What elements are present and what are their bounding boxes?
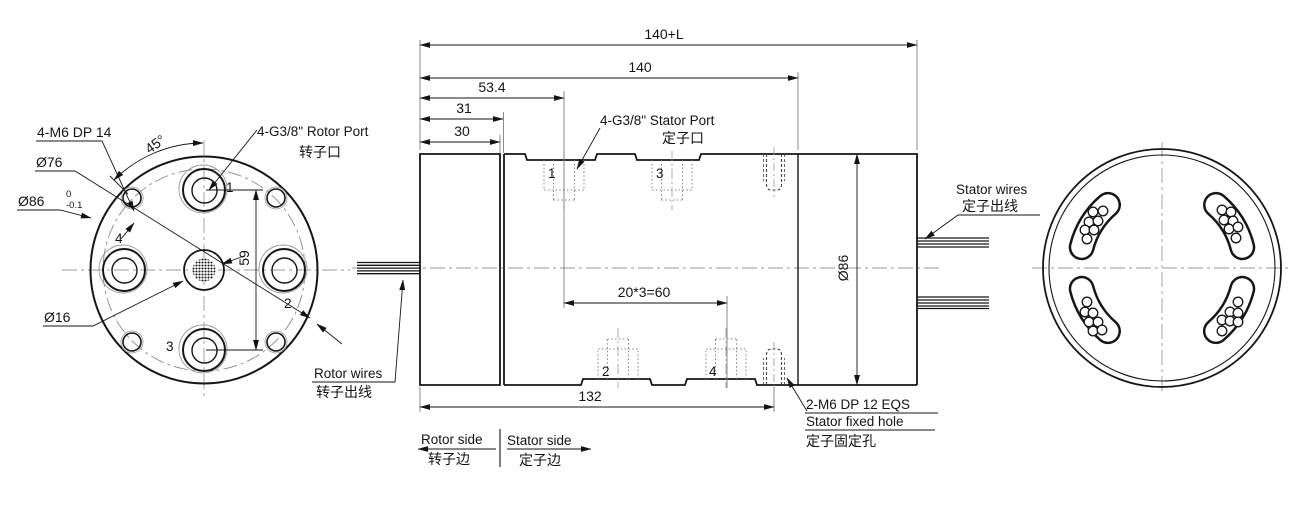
stator-wires-label-cn: 定子出线 xyxy=(962,198,1018,214)
dim-dia86-label: Ø86 xyxy=(835,255,851,282)
stator-side-label: Stator side xyxy=(507,433,572,448)
rotor-wires-label: Rotor wires xyxy=(314,366,383,381)
rotor-port-4 xyxy=(99,245,147,293)
stator-wires-label: Stator wires xyxy=(956,182,1028,197)
stator-side-label-cn: 定子边 xyxy=(519,452,561,468)
outer-dia-tol-lower: -0.1 xyxy=(66,200,82,211)
side-port-3: 3 xyxy=(656,166,664,181)
dim-140L-label: 140+L xyxy=(644,26,684,42)
front-port-1: 1 xyxy=(226,180,234,195)
dim-port-span-label: 20*3=60 xyxy=(618,284,671,300)
side-port-1: 1 xyxy=(548,166,556,181)
dim-132-label: 132 xyxy=(578,388,602,404)
front-view: 4-M6 DP 14 Ø76 Ø86 0 -0.1 Ø16 45° 59 1 2… xyxy=(17,124,403,400)
side-view: 140+L 140 53.4 31 30 20*3=60 132 Ø86 1 3… xyxy=(352,26,1040,468)
front-port-2: 2 xyxy=(284,296,292,311)
stator-fixed-holes xyxy=(764,154,785,385)
rotor-port-3 xyxy=(179,325,227,373)
side-port-4: 4 xyxy=(709,364,717,379)
engineering-drawing-canvas: 4-M6 DP 14 Ø76 Ø86 0 -0.1 Ø16 45° 59 1 2… xyxy=(0,0,1306,510)
fixed-hole-label: Stator fixed hole xyxy=(806,414,904,429)
front-port-4: 4 xyxy=(115,231,123,246)
port-centerlines xyxy=(564,151,726,388)
fixed-hole-label-cn: 定子固定孔 xyxy=(806,433,876,449)
dim-31-label: 31 xyxy=(456,100,472,116)
front-port-3: 3 xyxy=(166,339,174,354)
rotor-wires-label-cn: 转子出线 xyxy=(316,384,372,400)
angle-label: 45° xyxy=(142,131,169,156)
wire-bundle-stipple xyxy=(193,259,216,282)
hidden-stator-ports xyxy=(544,160,746,379)
side-port-2: 2 xyxy=(602,364,610,379)
outer-dia-tol-upper: 0 xyxy=(66,189,71,200)
m6-callout-label: 4-M6 DP 14 xyxy=(37,124,112,140)
rotor-wire-bundle xyxy=(357,263,420,274)
rotor-port-1 xyxy=(179,165,227,213)
outer-dia-label: Ø86 xyxy=(18,193,45,209)
rotor-side-label-cn: 转子边 xyxy=(428,451,470,467)
rear-view xyxy=(1032,142,1292,392)
rotor-port-2 xyxy=(259,245,307,293)
fixed-hole-spec-label: 2-M6 DP 12 EQS xyxy=(806,397,910,412)
dim-53-4-label: 53.4 xyxy=(478,79,505,95)
dimension-lines xyxy=(420,45,917,407)
rotor-port-label: 4-G3/8" Rotor Port xyxy=(257,124,369,139)
bolt-circle-label: Ø76 xyxy=(36,154,63,170)
stator-wire-bundle-lower xyxy=(917,297,989,309)
center-hole-label: Ø16 xyxy=(44,309,71,325)
extension-lines xyxy=(420,40,917,412)
rear-centerlines xyxy=(1032,142,1292,392)
dim-140-label: 140 xyxy=(628,59,652,75)
stator-port-label-cn: 定子口 xyxy=(662,130,704,146)
dim-30-label: 30 xyxy=(454,123,470,139)
rotor-port-label-cn: 转子口 xyxy=(299,144,341,160)
port-pitch-label: 59 xyxy=(236,250,252,266)
stator-wire-bundle-upper xyxy=(917,238,989,247)
front-leaders xyxy=(17,130,403,382)
pneumatic-slip-ring-drawing: 4-M6 DP 14 Ø76 Ø86 0 -0.1 Ø16 45° 59 1 2… xyxy=(0,0,1306,510)
stator-port-label: 4-G3/8" Stator Port xyxy=(600,113,715,128)
rotor-side-label: Rotor side xyxy=(421,432,483,447)
